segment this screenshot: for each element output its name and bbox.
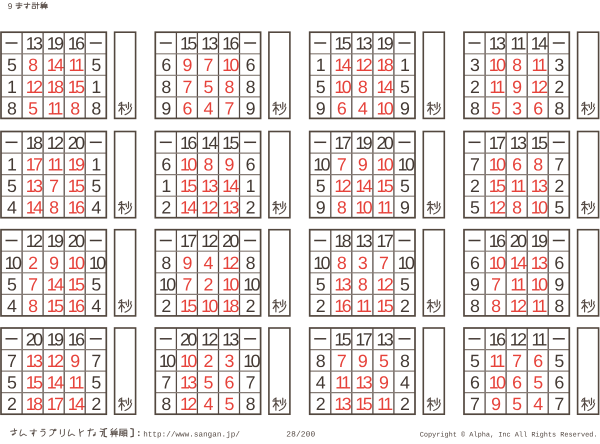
svg-text:15: 15 — [334, 330, 351, 350]
svg-text:13: 13 — [334, 394, 351, 414]
svg-text:12: 12 — [47, 133, 63, 153]
svg-text:16: 16 — [489, 330, 506, 350]
svg-text:1: 1 — [7, 77, 17, 97]
svg-text:12: 12 — [201, 198, 217, 218]
svg-text:8: 8 — [470, 296, 480, 316]
svg-text:12: 12 — [180, 394, 196, 414]
svg-text:4: 4 — [204, 98, 214, 118]
svg-text:2: 2 — [161, 296, 171, 316]
svg-text:4: 4 — [533, 394, 543, 414]
svg-text:1: 1 — [161, 176, 171, 196]
svg-text:8: 8 — [554, 98, 564, 118]
svg-text:12: 12 — [377, 274, 393, 294]
svg-text:10: 10 — [398, 155, 415, 175]
svg-text:10: 10 — [243, 351, 260, 371]
svg-text:12: 12 — [334, 176, 350, 196]
svg-text:5: 5 — [491, 98, 501, 118]
svg-text:13: 13 — [489, 34, 506, 54]
svg-text:10: 10 — [222, 274, 239, 294]
svg-text:7: 7 — [225, 98, 235, 118]
svg-text:15: 15 — [180, 34, 197, 54]
svg-text:9: 9 — [182, 253, 192, 273]
svg-text:9: 9 — [182, 55, 192, 75]
svg-text:9: 9 — [358, 351, 368, 371]
svg-text:7: 7 — [161, 373, 171, 393]
svg-text:4: 4 — [358, 98, 368, 118]
svg-text:7: 7 — [470, 394, 480, 414]
svg-text:20: 20 — [68, 133, 85, 153]
svg-text:2: 2 — [204, 274, 214, 294]
svg-text:7: 7 — [91, 351, 101, 371]
svg-text:4: 4 — [204, 394, 214, 414]
svg-text:5: 5 — [554, 351, 564, 371]
svg-text:19: 19 — [47, 330, 64, 350]
svg-text:2: 2 — [400, 296, 410, 316]
svg-text:8: 8 — [554, 296, 564, 316]
svg-text:18: 18 — [47, 77, 64, 97]
svg-text:7: 7 — [337, 351, 347, 371]
svg-text:6: 6 — [512, 155, 522, 175]
svg-text:15: 15 — [334, 34, 351, 54]
svg-text:2: 2 — [246, 296, 256, 316]
svg-text:14: 14 — [47, 274, 64, 294]
svg-text:12: 12 — [26, 231, 42, 251]
svg-text:6: 6 — [161, 55, 171, 75]
svg-text:10: 10 — [89, 253, 106, 273]
svg-text:12: 12 — [222, 253, 238, 273]
svg-text:5: 5 — [91, 373, 101, 393]
svg-text:8: 8 — [491, 296, 501, 316]
svg-text:5: 5 — [91, 55, 101, 75]
svg-text:16: 16 — [68, 330, 85, 350]
svg-text:15: 15 — [489, 176, 506, 196]
svg-text:5: 5 — [204, 77, 214, 97]
svg-text:7: 7 — [337, 155, 347, 175]
svg-text:12: 12 — [489, 198, 505, 218]
svg-text:5: 5 — [400, 77, 410, 97]
svg-text:6: 6 — [337, 98, 347, 118]
svg-text:7: 7 — [49, 176, 59, 196]
svg-text:8: 8 — [246, 77, 256, 97]
svg-text:16: 16 — [489, 231, 506, 251]
svg-text:9: 9 — [161, 98, 171, 118]
svg-text:12: 12 — [355, 55, 371, 75]
svg-text:14: 14 — [47, 55, 64, 75]
svg-text:14: 14 — [68, 394, 85, 414]
svg-text:10: 10 — [201, 296, 218, 316]
svg-text:6: 6 — [512, 373, 522, 393]
svg-text:5: 5 — [400, 274, 410, 294]
svg-text:19: 19 — [531, 231, 548, 251]
svg-text:14: 14 — [201, 133, 218, 153]
svg-text:8: 8 — [91, 98, 101, 118]
svg-text:15: 15 — [531, 133, 548, 153]
svg-text:3: 3 — [512, 98, 522, 118]
svg-text:14: 14 — [531, 34, 548, 54]
svg-text:17: 17 — [489, 133, 505, 153]
svg-text:10: 10 — [489, 373, 506, 393]
svg-text:10: 10 — [355, 198, 372, 218]
svg-text:4: 4 — [316, 373, 326, 393]
svg-text:5: 5 — [533, 373, 543, 393]
svg-text:3: 3 — [470, 55, 480, 75]
svg-text:6: 6 — [246, 55, 256, 75]
svg-text:10: 10 — [68, 253, 85, 273]
svg-text:12: 12 — [510, 330, 526, 350]
svg-text:5: 5 — [316, 274, 326, 294]
svg-text:9: 9 — [400, 198, 410, 218]
svg-text:1: 1 — [400, 55, 410, 75]
svg-text:16: 16 — [334, 296, 351, 316]
svg-text:8: 8 — [28, 55, 38, 75]
svg-text:2: 2 — [470, 77, 480, 97]
svg-text:2: 2 — [161, 198, 171, 218]
svg-text:13: 13 — [201, 176, 218, 196]
svg-text:4: 4 — [91, 198, 101, 218]
svg-text:5: 5 — [204, 373, 214, 393]
svg-text:18: 18 — [26, 394, 43, 414]
svg-text:2: 2 — [91, 394, 101, 414]
svg-text:2: 2 — [28, 253, 38, 273]
svg-text:9: 9 — [70, 351, 80, 371]
svg-text:19: 19 — [377, 34, 394, 54]
svg-text:18: 18 — [377, 55, 394, 75]
svg-text:18: 18 — [222, 296, 239, 316]
svg-text:9: 9 — [400, 98, 410, 118]
svg-text:5: 5 — [512, 394, 522, 414]
svg-text:8: 8 — [49, 198, 59, 218]
svg-text:10: 10 — [5, 253, 22, 273]
svg-text:20: 20 — [68, 231, 85, 251]
svg-text:15: 15 — [68, 176, 85, 196]
svg-text:4: 4 — [91, 296, 101, 316]
svg-text:9: 9 — [491, 394, 501, 414]
svg-text:5: 5 — [470, 198, 480, 218]
svg-text:12: 12 — [26, 77, 42, 97]
svg-text:15: 15 — [47, 296, 64, 316]
svg-text:2: 2 — [470, 176, 480, 196]
svg-text:17: 17 — [26, 155, 42, 175]
svg-text:5: 5 — [91, 176, 101, 196]
svg-text:13: 13 — [201, 34, 218, 54]
svg-text:12: 12 — [47, 351, 63, 371]
svg-text:7: 7 — [7, 351, 17, 371]
svg-text:16: 16 — [180, 133, 197, 153]
svg-text:8: 8 — [533, 155, 543, 175]
svg-text:13: 13 — [510, 133, 527, 153]
svg-text:http://www.sangan.jp/: http://www.sangan.jp/ — [143, 431, 240, 440]
svg-text:9: 9 — [316, 198, 326, 218]
svg-text:10: 10 — [243, 274, 260, 294]
svg-text:5: 5 — [28, 98, 38, 118]
svg-text:20: 20 — [222, 231, 239, 251]
svg-text:4: 4 — [400, 373, 410, 393]
svg-text:6: 6 — [470, 253, 480, 273]
svg-text:9: 9 — [358, 155, 368, 175]
svg-text:20: 20 — [377, 133, 394, 153]
svg-text:3: 3 — [225, 351, 235, 371]
svg-text:13: 13 — [334, 274, 351, 294]
svg-text:10: 10 — [377, 98, 394, 118]
svg-text:14: 14 — [180, 198, 197, 218]
svg-text:8: 8 — [246, 394, 256, 414]
svg-text:7: 7 — [246, 373, 256, 393]
svg-text:10: 10 — [377, 155, 394, 175]
svg-text:3: 3 — [358, 253, 368, 273]
svg-text:16: 16 — [68, 34, 85, 54]
svg-text:13: 13 — [355, 231, 372, 251]
svg-text:13: 13 — [222, 198, 239, 218]
svg-text:7: 7 — [470, 155, 480, 175]
svg-text:17: 17 — [377, 231, 393, 251]
svg-text:8: 8 — [337, 198, 347, 218]
svg-text:15: 15 — [377, 296, 394, 316]
svg-text:19: 19 — [47, 34, 64, 54]
svg-text:5: 5 — [470, 351, 480, 371]
svg-text:2: 2 — [400, 394, 410, 414]
svg-text:6: 6 — [533, 351, 543, 371]
svg-text:28/200: 28/200 — [286, 431, 315, 439]
svg-text:18: 18 — [26, 133, 43, 153]
svg-text:2: 2 — [316, 296, 326, 316]
svg-text:7: 7 — [554, 155, 564, 175]
svg-text:12: 12 — [201, 330, 217, 350]
svg-text:15: 15 — [68, 77, 85, 97]
svg-text:2: 2 — [554, 77, 564, 97]
svg-text:14: 14 — [222, 176, 239, 196]
svg-text:8: 8 — [358, 274, 368, 294]
svg-text:1: 1 — [246, 176, 256, 196]
svg-text:16: 16 — [222, 34, 239, 54]
svg-text:9: 9 — [225, 155, 235, 175]
svg-text:10: 10 — [180, 155, 197, 175]
svg-text:10: 10 — [159, 274, 176, 294]
svg-text:15: 15 — [222, 133, 239, 153]
svg-text:19: 19 — [68, 155, 85, 175]
svg-text:4: 4 — [204, 253, 214, 273]
svg-text:9: 9 — [470, 274, 480, 294]
svg-text:5: 5 — [7, 176, 17, 196]
svg-text:14: 14 — [355, 176, 372, 196]
svg-text:8: 8 — [204, 155, 214, 175]
svg-text:10: 10 — [398, 253, 415, 273]
svg-text:10: 10 — [313, 155, 330, 175]
svg-text:12: 12 — [201, 231, 217, 251]
svg-text:8: 8 — [470, 98, 480, 118]
svg-text:8: 8 — [225, 77, 235, 97]
svg-text:8: 8 — [161, 253, 171, 273]
svg-text:4: 4 — [7, 198, 17, 218]
svg-text:6: 6 — [225, 373, 235, 393]
svg-text:1: 1 — [7, 155, 17, 175]
svg-text:10: 10 — [531, 198, 548, 218]
svg-text:6: 6 — [554, 373, 564, 393]
svg-text:13: 13 — [355, 373, 372, 393]
svg-text:8: 8 — [512, 55, 522, 75]
svg-text:9: 9 — [379, 373, 389, 393]
svg-text:13: 13 — [180, 373, 197, 393]
svg-text:15: 15 — [355, 394, 372, 414]
svg-text:10: 10 — [222, 55, 239, 75]
svg-text:5: 5 — [225, 394, 235, 414]
svg-text:9: 9 — [512, 77, 522, 97]
svg-text:5: 5 — [7, 55, 17, 75]
svg-text:6: 6 — [161, 155, 171, 175]
svg-text:17: 17 — [355, 330, 371, 350]
svg-text:14: 14 — [47, 373, 64, 393]
svg-text:5: 5 — [554, 198, 564, 218]
svg-text:8: 8 — [316, 351, 326, 371]
svg-text:1: 1 — [316, 55, 326, 75]
svg-text:2: 2 — [7, 394, 17, 414]
svg-text:10: 10 — [313, 253, 330, 273]
svg-text:7: 7 — [379, 253, 389, 273]
svg-text:7: 7 — [182, 274, 192, 294]
svg-text:5: 5 — [7, 274, 17, 294]
svg-text:13: 13 — [222, 330, 239, 350]
svg-text:10: 10 — [531, 274, 548, 294]
svg-text:9: 9 — [49, 253, 59, 273]
svg-text:20: 20 — [26, 330, 43, 350]
svg-text:8: 8 — [400, 351, 410, 371]
svg-text:8: 8 — [337, 253, 347, 273]
svg-text:3: 3 — [554, 55, 564, 75]
svg-text:16: 16 — [68, 296, 85, 316]
svg-text:6: 6 — [246, 155, 256, 175]
svg-text:2: 2 — [316, 394, 326, 414]
svg-text:18: 18 — [334, 231, 351, 251]
svg-text:8: 8 — [512, 198, 522, 218]
svg-text:14: 14 — [510, 253, 527, 273]
svg-text:16: 16 — [68, 198, 85, 218]
svg-text:5: 5 — [316, 77, 326, 97]
svg-text:9: 9 — [8, 2, 13, 11]
svg-text:7: 7 — [28, 274, 38, 294]
svg-text:2: 2 — [246, 198, 256, 218]
svg-text:15: 15 — [180, 296, 197, 316]
svg-text:6: 6 — [470, 373, 480, 393]
svg-text:10: 10 — [334, 77, 351, 97]
svg-text:8: 8 — [161, 394, 171, 414]
svg-text:6: 6 — [554, 253, 564, 273]
svg-text:Copyright © Alpha, Inc All Rig: Copyright © Alpha, Inc All Rights Reserv… — [420, 431, 598, 439]
svg-text:8: 8 — [28, 296, 38, 316]
svg-text:10: 10 — [489, 55, 506, 75]
svg-text:19: 19 — [47, 231, 64, 251]
svg-text:7: 7 — [512, 351, 522, 371]
svg-text:13: 13 — [26, 176, 43, 196]
svg-text:15: 15 — [68, 274, 85, 294]
svg-text:9: 9 — [246, 98, 256, 118]
svg-text:13: 13 — [355, 34, 372, 54]
svg-text:1: 1 — [91, 155, 101, 175]
svg-text:13: 13 — [531, 176, 548, 196]
svg-text:9: 9 — [554, 274, 564, 294]
svg-text:6: 6 — [533, 98, 543, 118]
svg-text:8: 8 — [246, 253, 256, 273]
svg-text:14: 14 — [26, 198, 43, 218]
svg-text:5: 5 — [7, 373, 17, 393]
svg-text:5: 5 — [400, 176, 410, 196]
svg-text:20: 20 — [510, 231, 527, 251]
svg-text:17: 17 — [47, 394, 63, 414]
svg-text:13: 13 — [377, 330, 394, 350]
svg-text:13: 13 — [26, 351, 43, 371]
svg-text:1: 1 — [91, 77, 101, 97]
svg-text:14: 14 — [377, 77, 394, 97]
svg-text:2: 2 — [554, 176, 564, 196]
svg-text:4: 4 — [7, 296, 17, 316]
svg-text:7: 7 — [182, 77, 192, 97]
svg-text:17: 17 — [180, 231, 196, 251]
svg-text:5: 5 — [316, 176, 326, 196]
svg-text:6: 6 — [182, 98, 192, 118]
svg-text:9: 9 — [316, 98, 326, 118]
svg-text:20: 20 — [180, 330, 197, 350]
svg-text:7: 7 — [554, 394, 564, 414]
svg-text:14: 14 — [334, 55, 351, 75]
svg-text:19: 19 — [355, 133, 372, 153]
svg-text:8: 8 — [358, 77, 368, 97]
svg-text:13: 13 — [26, 34, 43, 54]
svg-text:12: 12 — [531, 77, 547, 97]
svg-text:5: 5 — [379, 351, 389, 371]
svg-text:10: 10 — [159, 351, 176, 371]
svg-text:8: 8 — [70, 98, 80, 118]
svg-text:8: 8 — [161, 77, 171, 97]
svg-text:10: 10 — [489, 155, 506, 175]
svg-text:8: 8 — [7, 98, 17, 118]
svg-text:12: 12 — [510, 296, 526, 316]
svg-text:13: 13 — [531, 253, 548, 273]
svg-text:7: 7 — [491, 274, 501, 294]
svg-text:7: 7 — [204, 55, 214, 75]
svg-text:15: 15 — [180, 176, 197, 196]
svg-text:2: 2 — [204, 351, 214, 371]
svg-text:15: 15 — [377, 176, 394, 196]
svg-text:10: 10 — [489, 253, 506, 273]
svg-text:17: 17 — [334, 133, 350, 153]
svg-text:10: 10 — [180, 351, 197, 371]
svg-text:15: 15 — [26, 373, 43, 393]
svg-text:5: 5 — [91, 274, 101, 294]
